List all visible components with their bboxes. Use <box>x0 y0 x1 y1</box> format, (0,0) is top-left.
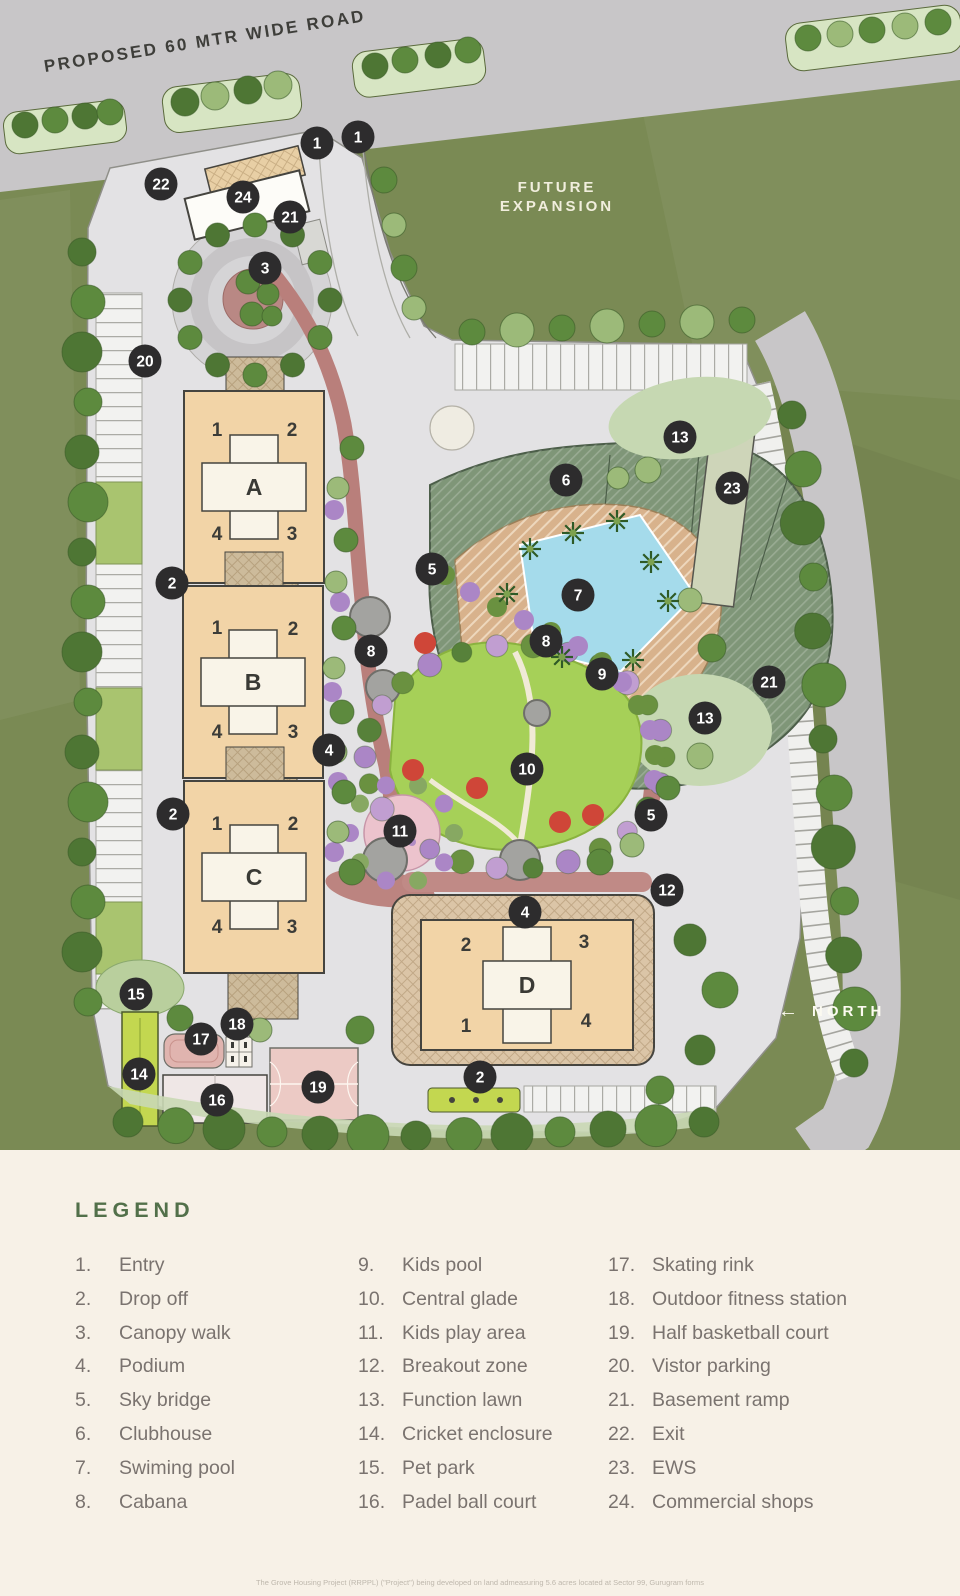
svg-text:19: 19 <box>309 1080 327 1097</box>
roundabout <box>430 406 474 450</box>
legend-item: 19.Half basketball court <box>608 1317 938 1351</box>
tree-icon <box>264 71 292 99</box>
legend-item-number: 1. <box>75 1249 119 1283</box>
legend-column-2: 9.Kids pool10.Central glade11.Kids play … <box>358 1249 608 1519</box>
tree-icon <box>68 838 96 866</box>
legend-item-number: 6. <box>75 1418 119 1452</box>
fitness-station <box>226 1037 252 1067</box>
tree-icon <box>243 363 267 387</box>
svg-text:22: 22 <box>152 177 169 194</box>
tree-icon <box>257 1117 287 1147</box>
tree-icon <box>729 307 755 333</box>
tree-icon <box>635 1105 677 1147</box>
legend-item: 18.Outdoor fitness station <box>608 1283 938 1317</box>
legend-item-number: 20. <box>608 1350 652 1384</box>
tree-icon <box>620 833 644 857</box>
svg-text:1: 1 <box>313 136 322 153</box>
tree-icon <box>325 571 347 593</box>
tree-icon <box>401 1121 431 1151</box>
tree-icon <box>72 103 98 129</box>
unit-number: 4 <box>212 524 223 545</box>
tree-icon <box>168 288 192 312</box>
tree-icon <box>234 76 262 104</box>
unit-number: 1 <box>212 618 223 639</box>
legend-item: 20.Vistor parking <box>608 1350 938 1384</box>
footnote: The Grove Housing Project (RRPPL) ("Proj… <box>0 1578 960 1587</box>
plan-marker-4: 4 <box>509 896 542 929</box>
unit-number: 4 <box>212 917 223 938</box>
tree-icon <box>65 435 99 469</box>
legend-item: 5.Sky bridge <box>75 1384 358 1418</box>
legend-item-label: Pet park <box>402 1452 608 1486</box>
tree-icon <box>74 688 102 716</box>
plan-marker-7: 7 <box>562 579 595 612</box>
legend-item: 23.EWS <box>608 1452 938 1486</box>
tree-icon <box>332 616 356 640</box>
plan-marker-22: 22 <box>145 168 178 201</box>
unit-number: 2 <box>288 814 299 835</box>
tree-icon <box>816 775 852 811</box>
tree-icon <box>491 1113 533 1152</box>
plan-marker-2: 2 <box>157 798 190 831</box>
legend-item-number: 7. <box>75 1452 119 1486</box>
legend-item: 4.Podium <box>75 1350 358 1384</box>
unit-number: 1 <box>212 814 223 835</box>
tree-icon <box>698 634 726 662</box>
palm-tree-icon <box>606 510 628 532</box>
tree-icon <box>308 251 332 275</box>
svg-text:21: 21 <box>281 210 299 227</box>
legend-item: 12.Breakout zone <box>358 1350 608 1384</box>
tree-icon <box>97 99 123 125</box>
legend-item-number: 8. <box>75 1486 119 1520</box>
tree-icon <box>332 780 356 804</box>
legend-item-label: Basement ramp <box>652 1384 938 1418</box>
tree-icon <box>800 563 828 591</box>
plan-marker-24: 24 <box>227 181 260 214</box>
legend-item-number: 3. <box>75 1317 119 1351</box>
plan-marker-8: 8 <box>530 625 563 658</box>
tower-letter-B: B <box>245 669 262 695</box>
plan-marker-14: 14 <box>123 1058 156 1091</box>
legend-item-label: Padel ball court <box>402 1486 608 1520</box>
plan-marker-16: 16 <box>201 1084 234 1117</box>
plan-marker-2: 2 <box>156 567 189 600</box>
tree-icon <box>778 401 806 429</box>
tree-icon <box>687 743 713 769</box>
legend-item-number: 23. <box>608 1452 652 1486</box>
tree-icon <box>240 302 264 326</box>
svg-text:2: 2 <box>168 576 177 593</box>
svg-text:6: 6 <box>562 473 571 490</box>
unit-number: 4 <box>581 1011 592 1032</box>
plan-marker-2: 2 <box>464 1061 497 1094</box>
plan-marker-5: 5 <box>416 553 449 586</box>
legend-item: 8.Cabana <box>75 1486 358 1520</box>
palm-tree-icon <box>622 649 644 671</box>
tree-icon <box>340 436 364 460</box>
tree-icon <box>62 632 102 672</box>
tree-icon <box>42 107 68 133</box>
plan-marker-9: 9 <box>586 658 619 691</box>
legend-item-label: Skating rink <box>652 1249 938 1283</box>
tree-icon <box>840 1049 868 1077</box>
tree-icon <box>334 528 358 552</box>
plan-marker-1: 1 <box>342 121 375 154</box>
tree-icon <box>500 313 534 347</box>
legend-item-number: 13. <box>358 1384 402 1418</box>
plan-marker-23: 23 <box>716 472 749 505</box>
north-arrow-icon: ← <box>778 1000 798 1022</box>
legend-item: 21.Basement ramp <box>608 1384 938 1418</box>
tree-icon <box>371 167 397 193</box>
tree-icon <box>635 457 661 483</box>
tree-icon <box>206 223 230 247</box>
tree-icon <box>201 82 229 110</box>
legend-item: 7.Swiming pool <box>75 1452 358 1486</box>
svg-text:9: 9 <box>598 667 607 684</box>
tree-icon <box>809 725 837 753</box>
tree-icon <box>680 305 714 339</box>
plan-marker-5: 5 <box>635 799 668 832</box>
legend-item-number: 16. <box>358 1486 402 1520</box>
legend-item: 22.Exit <box>608 1418 938 1452</box>
unit-number: 2 <box>461 935 472 956</box>
legend-item-label: Sky bridge <box>119 1384 358 1418</box>
tree-icon <box>68 238 96 266</box>
tree-icon <box>308 326 332 350</box>
tree-icon <box>327 821 349 843</box>
tower-letter-D: D <box>519 972 536 998</box>
tree-icon <box>171 88 199 116</box>
legend-item: 15.Pet park <box>358 1452 608 1486</box>
legend-title: LEGEND <box>75 1198 195 1223</box>
svg-text:7: 7 <box>574 588 583 605</box>
legend-item-number: 10. <box>358 1283 402 1317</box>
legend-item-label: Podium <box>119 1350 358 1384</box>
tree-icon <box>71 885 105 919</box>
plan-marker-18: 18 <box>221 1008 254 1041</box>
tree-icon <box>892 13 918 39</box>
tree-icon <box>590 1111 626 1147</box>
tree-icon <box>607 467 629 489</box>
svg-text:2: 2 <box>169 807 178 824</box>
plan-marker-13: 13 <box>664 421 697 454</box>
unit-number: 3 <box>288 722 299 743</box>
plan-marker-3: 3 <box>249 252 282 285</box>
plan-marker-15: 15 <box>120 978 153 1011</box>
legend-item: 24.Commercial shops <box>608 1486 938 1520</box>
tree-icon <box>827 21 853 47</box>
legend-item-label: Breakout zone <box>402 1350 608 1384</box>
tree-icon <box>425 42 451 68</box>
legend-item-number: 2. <box>75 1283 119 1317</box>
tree-icon <box>446 1118 482 1152</box>
svg-text:5: 5 <box>428 562 437 579</box>
legend-item-label: Half basketball court <box>652 1317 938 1351</box>
tree-icon <box>74 988 102 1016</box>
svg-text:18: 18 <box>228 1017 246 1034</box>
tree-icon <box>795 25 821 51</box>
legend-item-label: Clubhouse <box>119 1418 358 1452</box>
tree-icon <box>323 657 345 679</box>
tree-icon <box>68 538 96 566</box>
legend-item-number: 22. <box>608 1418 652 1452</box>
tree-icon <box>206 353 230 377</box>
tree-icon <box>859 17 885 43</box>
legend-item-number: 24. <box>608 1486 652 1520</box>
legend-item-number: 18. <box>608 1283 652 1317</box>
tree-icon <box>113 1107 143 1137</box>
tree-icon <box>158 1108 194 1144</box>
svg-text:3: 3 <box>261 261 270 278</box>
palm-tree-icon <box>496 583 518 605</box>
north-label: NORTH <box>812 1003 885 1020</box>
svg-text:4: 4 <box>521 905 530 922</box>
tree-icon <box>678 588 702 612</box>
legend-item-number: 19. <box>608 1317 652 1351</box>
plan-marker-10: 10 <box>511 753 544 786</box>
tree-icon <box>339 859 365 885</box>
tree-icon <box>71 285 105 319</box>
tree-icon <box>178 326 202 350</box>
svg-text:4: 4 <box>325 743 334 760</box>
tree-icon <box>62 932 102 972</box>
svg-text:5: 5 <box>647 808 656 825</box>
tree-icon <box>62 332 102 372</box>
svg-text:11: 11 <box>392 824 409 841</box>
tree-icon <box>689 1107 719 1137</box>
legend-item: 17.Skating rink <box>608 1249 938 1283</box>
tree-icon <box>68 782 108 822</box>
legend-item-number: 17. <box>608 1249 652 1283</box>
svg-text:10: 10 <box>518 762 535 779</box>
legend-item-label: Drop off <box>119 1283 358 1317</box>
legend-item-number: 4. <box>75 1350 119 1384</box>
legend-item-number: 21. <box>608 1384 652 1418</box>
svg-text:23: 23 <box>723 481 741 498</box>
svg-text:13: 13 <box>671 430 689 447</box>
tree-icon <box>639 311 665 337</box>
legend-item: 3.Canopy walk <box>75 1317 358 1351</box>
legend-item-label: Kids pool <box>402 1249 608 1283</box>
plan-marker-1: 1 <box>301 127 334 160</box>
unit-number: 2 <box>288 619 299 640</box>
plan-marker-8: 8 <box>355 635 388 668</box>
legend-item-label: Central glade <box>402 1283 608 1317</box>
future-expansion-label-2: EXPANSION <box>500 198 614 215</box>
tree-icon <box>178 251 202 275</box>
legend-item-label: Cricket enclosure <box>402 1418 608 1452</box>
legend-item-number: 12. <box>358 1350 402 1384</box>
plan-marker-21: 21 <box>274 201 307 234</box>
site-plan: A1243B1243C1243D2314 1122242132013623527… <box>0 0 960 1152</box>
tree-icon <box>12 112 38 138</box>
tree-icon <box>826 937 862 973</box>
legend-item-label: Entry <box>119 1249 358 1283</box>
legend-item: 11.Kids play area <box>358 1317 608 1351</box>
unit-number: 4 <box>212 722 223 743</box>
svg-text:24: 24 <box>234 190 252 207</box>
legend-item: 1.Entry <box>75 1249 358 1283</box>
legend-item-label: Canopy walk <box>119 1317 358 1351</box>
tree-icon <box>257 283 279 305</box>
tower-letter-C: C <box>246 864 263 890</box>
legend-item-label: EWS <box>652 1452 938 1486</box>
unit-number: 3 <box>579 932 590 953</box>
tree-icon <box>780 501 824 545</box>
plan-marker-12: 12 <box>651 874 684 907</box>
plan-marker-13: 13 <box>689 702 722 735</box>
legend-item-label: Kids play area <box>402 1317 608 1351</box>
legend-column-1: 1.Entry2.Drop off3.Canopy walk4.Podium5.… <box>75 1249 358 1519</box>
tree-icon <box>785 451 821 487</box>
legend-item: 14.Cricket enclosure <box>358 1418 608 1452</box>
tree-icon <box>587 849 613 875</box>
palm-tree-icon <box>562 522 584 544</box>
svg-text:1: 1 <box>354 130 363 147</box>
legend-item-number: 11. <box>358 1317 402 1351</box>
tree-icon <box>545 1117 575 1147</box>
tree-icon <box>674 924 706 956</box>
legend-item-label: Function lawn <box>402 1384 608 1418</box>
legend-item-number: 9. <box>358 1249 402 1283</box>
tree-icon <box>795 613 831 649</box>
tree-icon <box>802 663 846 707</box>
legend-item-label: Exit <box>652 1418 938 1452</box>
tree-icon <box>68 482 108 522</box>
palm-tree-icon <box>640 551 662 573</box>
site-plan-page: A1243B1243C1243D2314 1122242132013623527… <box>0 0 960 1596</box>
unit-number: 3 <box>287 917 298 938</box>
legend-item-label: Vistor parking <box>652 1350 938 1384</box>
tree-icon <box>167 1005 193 1031</box>
tree-icon <box>402 296 426 320</box>
plan-marker-11: 11 <box>384 815 417 848</box>
legend-item: 13.Function lawn <box>358 1384 608 1418</box>
legend-item-label: Swiming pool <box>119 1452 358 1486</box>
svg-text:12: 12 <box>658 883 675 900</box>
legend-column-3: 17.Skating rink18.Outdoor fitness statio… <box>608 1249 938 1519</box>
tree-icon <box>459 319 485 345</box>
svg-text:13: 13 <box>696 711 714 728</box>
plan-marker-21: 21 <box>753 666 786 699</box>
tree-icon <box>346 1016 374 1044</box>
tree-icon <box>330 700 354 724</box>
legend-item-number: 15. <box>358 1452 402 1486</box>
plan-marker-4: 4 <box>313 734 346 767</box>
legend-item-number: 14. <box>358 1418 402 1452</box>
svg-text:21: 21 <box>760 675 778 692</box>
tree-icon <box>382 213 406 237</box>
legend-item-label: Cabana <box>119 1486 358 1520</box>
legend-panel: LEGEND 1.Entry2.Drop off3.Canopy walk4.P… <box>0 1150 960 1596</box>
svg-text:20: 20 <box>136 354 153 371</box>
tree-icon <box>71 585 105 619</box>
legend-item: 10.Central glade <box>358 1283 608 1317</box>
svg-text:15: 15 <box>127 987 145 1004</box>
legend-item: 9.Kids pool <box>358 1249 608 1283</box>
tree-icon <box>362 53 388 79</box>
legend-item-label: Commercial shops <box>652 1486 938 1520</box>
tree-icon <box>590 309 624 343</box>
legend-item: 2.Drop off <box>75 1283 358 1317</box>
tree-icon <box>702 972 738 1008</box>
svg-text:17: 17 <box>192 1032 209 1049</box>
tree-icon <box>549 315 575 341</box>
tree-icon <box>685 1035 715 1065</box>
svg-text:8: 8 <box>367 644 376 661</box>
unit-number: 1 <box>212 420 223 441</box>
future-expansion-label-1: FUTURE <box>518 179 597 196</box>
svg-text:2: 2 <box>476 1070 485 1087</box>
legend-item-number: 5. <box>75 1384 119 1418</box>
tree-icon <box>327 477 349 499</box>
tree-icon <box>243 213 267 237</box>
tree-icon <box>455 37 481 63</box>
svg-text:8: 8 <box>542 634 551 651</box>
tower-letter-A: A <box>246 474 263 500</box>
legend-item: 16.Padel ball court <box>358 1486 608 1520</box>
palm-tree-icon <box>519 538 541 560</box>
tree-icon <box>656 776 680 800</box>
tree-icon <box>925 9 951 35</box>
svg-text:16: 16 <box>208 1093 226 1110</box>
unit-number: 2 <box>287 420 298 441</box>
plan-marker-19: 19 <box>302 1071 335 1104</box>
tree-icon <box>831 887 859 915</box>
unit-number: 1 <box>461 1016 472 1037</box>
tree-icon <box>302 1116 338 1152</box>
plan-marker-6: 6 <box>550 464 583 497</box>
tree-icon <box>281 353 305 377</box>
tree-icon <box>262 306 282 326</box>
tree-icon <box>811 825 855 869</box>
plan-marker-20: 20 <box>129 345 162 378</box>
tree-icon <box>646 1076 674 1104</box>
tree-icon <box>65 735 99 769</box>
tree-icon <box>392 47 418 73</box>
palm-tree-icon <box>657 590 679 612</box>
legend-item: 6.Clubhouse <box>75 1418 358 1452</box>
tree-icon <box>391 255 417 281</box>
svg-text:14: 14 <box>130 1067 148 1084</box>
tree-icon <box>347 1115 389 1152</box>
tree-icon <box>74 388 102 416</box>
plan-marker-17: 17 <box>185 1023 218 1056</box>
legend-item-label: Outdoor fitness station <box>652 1283 938 1317</box>
tree-icon <box>318 288 342 312</box>
unit-number: 3 <box>287 524 298 545</box>
